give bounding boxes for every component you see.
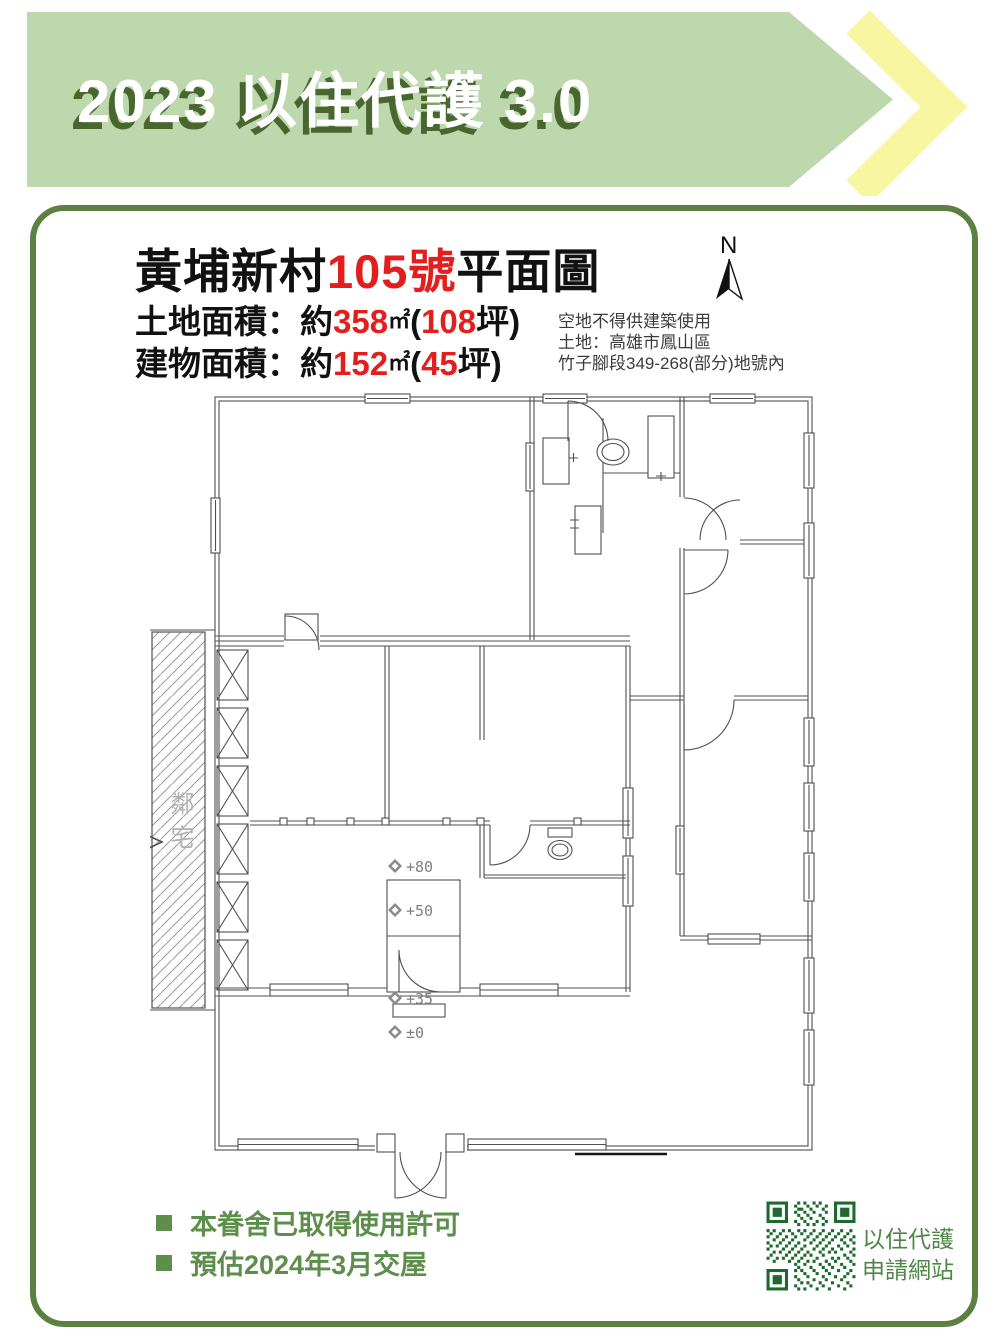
building-area-sqm: 152 [333,345,388,382]
footer-note-1: 本眷舍已取得使用許可 [156,1203,460,1242]
site-note: 空地不得供建築使用 土地：高雄市鳳山區 竹子腳段349-268(部分)地號內 [558,311,785,374]
qr-code [765,1200,857,1292]
compass-label: N [720,232,737,259]
main-panel: 黃埔新村105號平面圖 土地面積：約358㎡(108坪) 建物面積：約152㎡(… [30,205,978,1327]
level-label-80: +80 [406,858,433,876]
north-arrow-icon: N [706,229,752,307]
site-note-line2: 土地：高雄市鳳山區 [558,332,785,353]
bullet-square-icon [156,1215,172,1231]
banner-title: 2023 以住代護 3.0 [77,53,593,140]
building-area-unit: ㎡ [388,350,410,375]
level-label-50: +50 [406,902,433,920]
footer-note-2-text: 預估2024年3月交屋 [190,1243,427,1282]
footer-note-2: 預估2024年3月交屋 [156,1243,427,1282]
floor-plan: +80 +50 +35 ±0 [150,388,840,1218]
qr-caption-line2: 申請網站 [862,1255,954,1286]
title-suffix: 平面圖 [456,245,600,298]
level-label-0: ±0 [406,1024,424,1042]
chevron-arrow-icon [846,6,986,196]
land-area-sqm: 358 [333,303,388,340]
qr-caption-line1: 以住代護 [862,1224,954,1255]
neighbor-house-label: 鄰宅 [162,791,197,859]
building-area-line: 建物面積：約152㎡(45坪) [135,337,502,385]
level-label-35: +35 [406,990,433,1008]
page-title: 黃埔新村105號平面圖 [135,233,600,302]
poster-page: 2023 以住代護 3.0 黃埔新村105號平面圖 土地面積：約358㎡(108… [0,0,1008,1344]
qr-caption: 以住代護 申請網站 [862,1224,954,1286]
building-area-label: 建物面積：約 [135,345,333,382]
land-area-line: 土地面積：約358㎡(108坪) [135,295,520,343]
building-area-tsubo: 45 [421,345,458,382]
bullet-square-icon [156,1255,172,1271]
title-house-number: 105號 [327,245,456,298]
site-note-line1: 空地不得供建築使用 [558,311,785,332]
land-area-unit: ㎡ [388,308,410,333]
land-area-label: 土地面積：約 [135,303,333,340]
land-area-tsubo: 108 [421,303,476,340]
title-prefix: 黃埔新村 [135,245,327,298]
site-note-line3: 竹子腳段349-268(部分)地號內 [558,353,785,374]
banner: 2023 以住代護 3.0 [27,12,893,187]
plan-linework [150,394,814,1198]
footer-note-1-text: 本眷舍已取得使用許可 [190,1203,460,1242]
